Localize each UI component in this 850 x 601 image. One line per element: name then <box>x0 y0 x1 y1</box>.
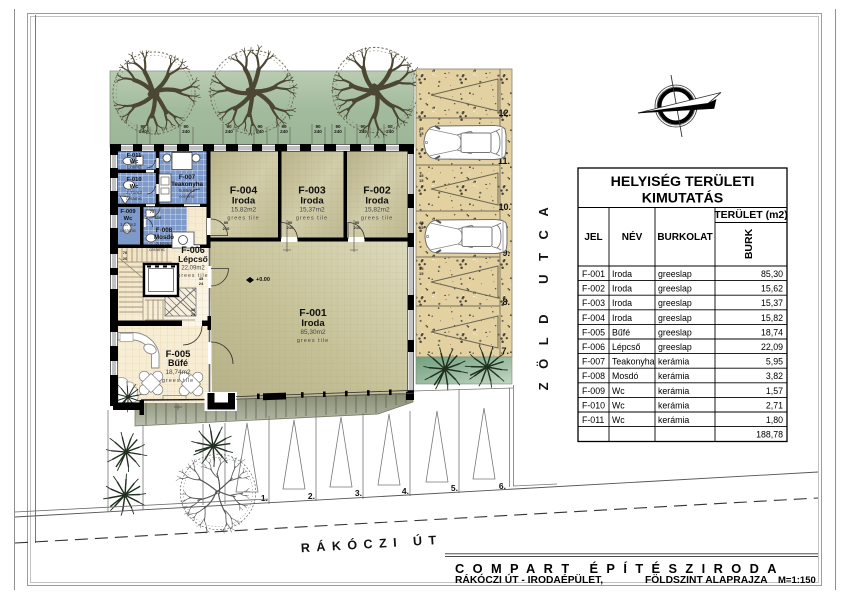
svg-text:5,95: 5,95 <box>766 357 783 367</box>
svg-text:F-009: F-009 <box>120 209 136 215</box>
svg-text:3.: 3. <box>355 488 362 498</box>
svg-text:15,82: 15,82 <box>761 313 783 323</box>
svg-text:Wc: Wc <box>612 415 625 425</box>
svg-text:grees tile: grees tile <box>361 216 393 222</box>
svg-text:20: 20 <box>123 256 128 261</box>
svg-text:1,57: 1,57 <box>766 386 783 396</box>
svg-text:F-002: F-002 <box>582 284 605 294</box>
svg-text:22,09: 22,09 <box>761 342 783 352</box>
svg-text:grees tile: grees tile <box>297 338 329 344</box>
svg-text:75: 75 <box>150 209 155 214</box>
svg-text:greeslap: greeslap <box>658 284 692 294</box>
svg-text:F-009: F-009 <box>582 386 605 396</box>
svg-text:greeslap: greeslap <box>658 327 692 337</box>
svg-text:F-007: F-007 <box>582 357 605 367</box>
svg-text:F-001: F-001 <box>582 269 605 279</box>
svg-text:Iroda: Iroda <box>232 196 256 207</box>
svg-text:Wc: Wc <box>612 386 625 396</box>
svg-text:F-011: F-011 <box>582 415 604 425</box>
svg-text:Wc: Wc <box>612 400 625 410</box>
svg-text:KIMUTATÁS: KIMUTATÁS <box>642 190 723 207</box>
svg-text:Mosdó: Mosdó <box>612 371 639 381</box>
svg-text:Bűfé: Bűfé <box>168 358 188 368</box>
svg-text:Lépcső: Lépcső <box>178 254 208 264</box>
svg-text:240: 240 <box>225 129 233 134</box>
svg-text:Iroda: Iroda <box>612 313 632 323</box>
svg-text:25: 25 <box>191 312 196 317</box>
svg-text:15,82m2: 15,82m2 <box>231 207 257 214</box>
svg-text:240: 240 <box>314 129 322 134</box>
svg-text:24: 24 <box>199 281 204 286</box>
svg-text:F-005: F-005 <box>582 327 605 337</box>
svg-text:240: 240 <box>334 129 342 134</box>
svg-text:greeslap: greeslap <box>658 313 692 323</box>
svg-text:grees tile: grees tile <box>227 216 259 222</box>
svg-text:HELYISÉG TERÜLETI: HELYISÉG TERÜLETI <box>611 173 755 190</box>
svg-text:TERÜLET (m2): TERÜLET (m2) <box>714 208 788 221</box>
svg-text:Teakonyha: Teakonyha <box>612 357 655 367</box>
svg-text:15,82m2: 15,82m2 <box>364 207 390 214</box>
svg-text:1,80: 1,80 <box>766 415 783 425</box>
svg-text:18,74: 18,74 <box>761 327 783 337</box>
svg-text:kerámia: kerámia <box>658 415 689 425</box>
svg-text:22,09m2: 22,09m2 <box>181 266 205 272</box>
svg-text:85,30: 85,30 <box>761 269 783 279</box>
svg-text:kerámia: kerámia <box>658 371 689 381</box>
svg-text:15: 15 <box>419 131 424 136</box>
svg-text:110: 110 <box>155 215 162 220</box>
svg-text:210: 210 <box>354 225 361 230</box>
svg-text:F-004: F-004 <box>582 313 605 323</box>
svg-text:F-008: F-008 <box>582 371 605 381</box>
svg-text:NÉV: NÉV <box>622 230 643 243</box>
svg-text:grees tile: grees tile <box>162 378 194 384</box>
svg-text:240: 240 <box>182 129 190 134</box>
svg-text:Wc: Wc <box>124 216 133 222</box>
svg-text:ceramic: ceramic <box>149 247 166 252</box>
svg-text:greeslap: greeslap <box>658 298 692 308</box>
svg-text:Iroda: Iroda <box>301 318 325 329</box>
svg-text:Iroda: Iroda <box>612 298 632 308</box>
svg-text:greeslap: greeslap <box>658 342 692 352</box>
svg-text:15,62: 15,62 <box>761 284 783 294</box>
svg-text:F-008: F-008 <box>156 227 173 234</box>
svg-text:2,71: 2,71 <box>766 400 783 410</box>
svg-text:Iroda: Iroda <box>300 196 324 207</box>
svg-text:BURKOLAT: BURKOLAT <box>657 232 712 243</box>
svg-text:15: 15 <box>419 271 424 276</box>
svg-text:F-003: F-003 <box>582 298 605 308</box>
svg-text:5.: 5. <box>451 483 458 493</box>
svg-text:15: 15 <box>419 225 424 230</box>
svg-text:grees tile: grees tile <box>296 216 328 222</box>
svg-text:15,37m2: 15,37m2 <box>299 207 325 214</box>
svg-text:4.: 4. <box>402 486 409 496</box>
svg-text:240: 240 <box>280 129 288 134</box>
svg-text:Bűfé: Bűfé <box>612 327 630 337</box>
svg-text:15,37: 15,37 <box>761 298 783 308</box>
svg-text:85,30m2: 85,30m2 <box>300 329 326 336</box>
svg-text:F-007: F-007 <box>179 174 196 181</box>
svg-text:ceramic: ceramic <box>126 196 143 201</box>
svg-text:12.: 12. <box>498 108 511 118</box>
svg-text:10.: 10. <box>498 202 511 212</box>
svg-text:RÁKÓCZI ÚT - IRODAÉPÜLET,: RÁKÓCZI ÚT - IRODAÉPÜLET, <box>455 573 603 586</box>
svg-text:grees tile: grees tile <box>177 273 208 279</box>
svg-text:Iroda: Iroda <box>365 196 389 207</box>
svg-text:1,80m2: 1,80m2 <box>126 165 142 170</box>
svg-text:greeslap: greeslap <box>658 269 692 279</box>
svg-text:76: 76 <box>123 250 128 255</box>
svg-text:210: 210 <box>223 226 230 231</box>
svg-text:kerámia: kerámia <box>658 386 689 396</box>
svg-text:3,82: 3,82 <box>766 371 783 381</box>
svg-text:+0.00: +0.00 <box>256 277 270 283</box>
svg-text:ceramic: ceramic <box>120 228 137 233</box>
svg-text:M=1:150: M=1:150 <box>778 575 816 586</box>
svg-text:ZÖLD UTCA: ZÖLD UTCA <box>536 194 551 391</box>
svg-text:1.: 1. <box>261 493 268 503</box>
svg-text:Lépcső: Lépcső <box>612 342 640 352</box>
svg-text:Mosdó: Mosdó <box>154 234 174 241</box>
svg-text:FÖLDSZINT ALAPRAJZA: FÖLDSZINT ALAPRAJZA <box>645 573 768 586</box>
svg-text:15: 15 <box>419 178 424 183</box>
svg-text:COMPART ÉPÍTÉSZIRODA: COMPART ÉPÍTÉSZIRODA <box>455 561 785 576</box>
svg-text:kerámia: kerámia <box>658 357 689 367</box>
svg-text:210: 210 <box>287 225 294 230</box>
svg-text:BURK: BURK <box>743 228 755 259</box>
svg-text:JEL: JEL <box>584 232 602 243</box>
svg-text:Iroda: Iroda <box>612 284 632 294</box>
svg-text:kerámia: kerámia <box>658 400 689 410</box>
svg-text:ceramic: ceramic <box>179 194 196 199</box>
svg-text:Wc: Wc <box>130 184 139 190</box>
svg-text:F-006: F-006 <box>582 342 605 352</box>
svg-text:Iroda: Iroda <box>612 269 632 279</box>
svg-text:F-010: F-010 <box>126 177 141 183</box>
svg-text:188,78: 188,78 <box>756 430 783 440</box>
svg-text:F-010: F-010 <box>582 400 605 410</box>
svg-text:2.: 2. <box>308 491 315 501</box>
svg-text:Teakonyha: Teakonyha <box>171 181 203 188</box>
svg-text:18,74m2: 18,74m2 <box>165 369 191 376</box>
svg-text:8.: 8. <box>502 297 510 307</box>
